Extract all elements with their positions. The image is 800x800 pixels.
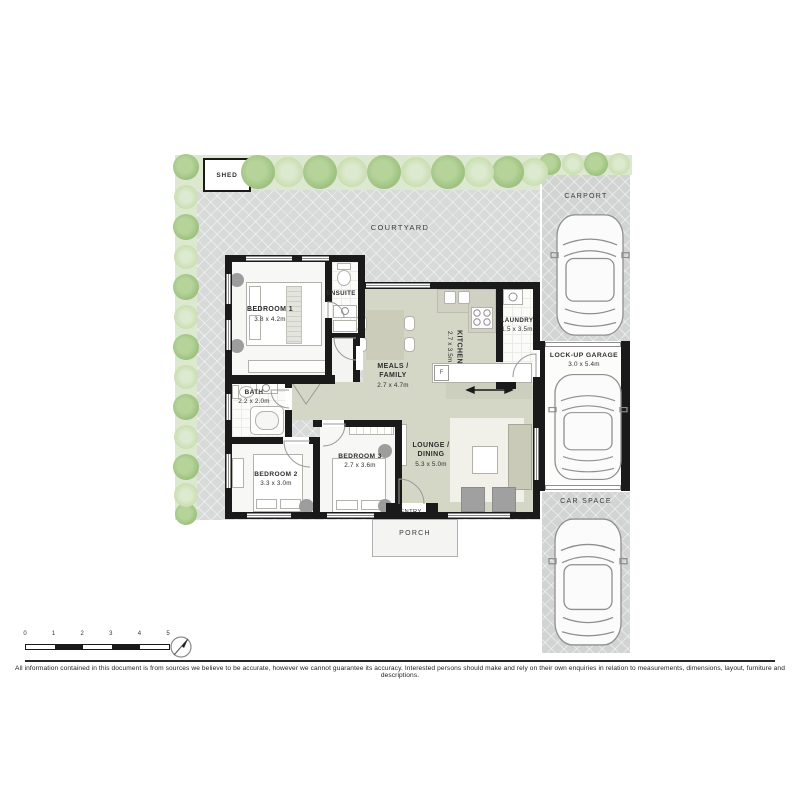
bed1-robe	[248, 360, 332, 373]
dining-table	[366, 310, 404, 360]
meals-family-label: MEALS / FAMILY 2.7 x 4.7m	[364, 363, 422, 389]
ensuite-vanity	[333, 305, 357, 318]
kitchen-sink	[458, 291, 470, 304]
fridge-label: F	[440, 370, 444, 376]
disclaimer-text: All information contained in this docume…	[0, 665, 800, 679]
tree-icon	[562, 153, 584, 175]
tree-icon	[173, 154, 199, 180]
window	[226, 454, 231, 488]
tree-icon	[173, 274, 199, 300]
garage-roller-door	[545, 485, 621, 490]
tree-icon	[520, 158, 548, 186]
bed2-pillow	[280, 499, 301, 509]
car-space-label: CAR SPACE	[548, 498, 624, 505]
window	[327, 513, 374, 518]
tree-icon	[608, 153, 630, 175]
courtyard-label: COURTYARD	[350, 223, 450, 232]
sliding-door	[366, 283, 430, 288]
tree-icon	[173, 394, 199, 420]
entry-label: ENTRY	[392, 509, 430, 516]
deck-strip	[446, 383, 532, 399]
carport-label: CARPORT	[548, 193, 624, 200]
window	[534, 428, 539, 480]
compass-icon	[171, 637, 191, 657]
scale-bar: 0 1 2 3 4 5	[25, 631, 170, 650]
porch-area	[372, 519, 458, 557]
armchair	[492, 487, 516, 512]
bed3-pillow	[336, 500, 358, 510]
shed-label: SHED	[216, 172, 237, 179]
plant	[230, 273, 244, 287]
dining-chair	[404, 316, 415, 331]
kitchen-sink	[444, 291, 456, 304]
tree-icon	[173, 454, 199, 480]
window	[302, 256, 329, 261]
window	[226, 274, 231, 304]
dining-chair	[404, 337, 415, 352]
window	[226, 320, 231, 350]
bedroom1-label: BEDROOM 1 3.8 x 4.2m	[239, 306, 301, 324]
bed2-pillow	[256, 499, 277, 509]
footer-divider	[25, 660, 775, 662]
tree-icon	[464, 157, 494, 187]
lounge-dining-label: LOUNGE / DINING 5.3 x 5.0m	[402, 442, 460, 468]
tree-icon	[174, 425, 198, 449]
ensuite-label: ENSUITE	[316, 290, 366, 298]
stove	[471, 307, 493, 329]
tree-icon	[173, 334, 199, 360]
window	[246, 256, 292, 261]
window	[448, 513, 510, 518]
tree-icon	[174, 305, 198, 329]
tree-icon	[367, 155, 401, 189]
tree-icon	[431, 155, 465, 189]
tree-icon	[241, 155, 275, 189]
bedroom3-label: BEDROOM 3 2.7 x 3.6m	[330, 453, 390, 470]
tree-icon	[303, 155, 337, 189]
bathtub-basin	[255, 411, 279, 430]
tree-icon	[337, 157, 367, 187]
car-space-area	[542, 492, 630, 653]
ensuite-shower	[333, 320, 357, 332]
tree-icon	[174, 483, 198, 507]
bath-label: BATH 2.2 x 2.0m	[230, 389, 278, 406]
tree-icon	[401, 157, 431, 187]
laundry-label: LAUNDRY 1.5 x 3.5m	[492, 317, 542, 334]
scale-bar-segments	[25, 644, 170, 650]
tree-icon	[492, 156, 524, 188]
ensuite-toilet-tank	[337, 263, 351, 270]
floorplan-page: SHED F	[0, 0, 800, 800]
tree-icon	[174, 245, 198, 269]
armchair	[461, 487, 485, 512]
garage-roller-door	[545, 342, 621, 347]
tree-icon	[174, 185, 198, 209]
porch-label: PORCH	[385, 530, 445, 537]
window	[247, 513, 291, 518]
bed2-robe	[232, 458, 244, 488]
coffee-table	[472, 446, 498, 474]
tree-icon	[584, 152, 608, 176]
garage-label: LOCK-UP GARAGE 3.0 x 5.4m	[542, 352, 626, 369]
tree-icon	[273, 157, 303, 187]
tree-icon	[173, 214, 199, 240]
kitchen-label: KITCHEN 2.7 x 3.5m	[445, 312, 463, 382]
sofa	[508, 424, 532, 490]
bedroom2-label: BEDROOM 2 3.3 x 3.0m	[245, 471, 307, 488]
tree-icon	[174, 365, 198, 389]
laundry-sink	[503, 289, 523, 305]
plant	[230, 339, 244, 353]
ensuite-toilet	[337, 270, 351, 286]
